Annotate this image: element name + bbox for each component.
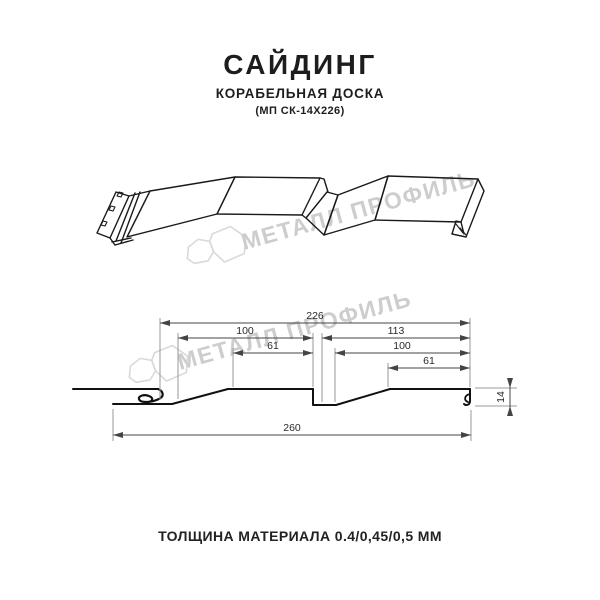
material-thickness-note: ТОЛЩИНА МАТЕРИАЛА 0.4/0,45/0,5 ММ <box>0 528 600 544</box>
watermark-brand-text: МЕТАЛЛ ПРОФИЛЬ <box>238 165 478 255</box>
watermark-lower: МЕТАЛЛ ПРОФИЛЬ <box>125 285 414 387</box>
dim-label-100-left: 100 <box>236 325 254 337</box>
technical-drawing: МЕТАЛЛ ПРОФИЛЬ МЕТАЛЛ ПРОФИЛЬ <box>0 0 600 600</box>
dim-label-61-left: 61 <box>267 340 279 352</box>
dim-label-100-right: 100 <box>393 340 411 352</box>
watermark-brand-text: МЕТАЛЛ ПРОФИЛЬ <box>174 285 414 375</box>
siding-spec-sheet: САЙДИНГ КОРАБЕЛЬНАЯ ДОСКА (МП СК-14Х226)… <box>0 0 600 600</box>
cross-section-drawing <box>73 389 470 405</box>
dim-label-260: 260 <box>283 422 301 434</box>
dim-label-113: 113 <box>388 325 405 337</box>
dim-label-61-right: 61 <box>423 355 435 367</box>
dim-label-14: 14 <box>495 391 507 403</box>
dim-label-226: 226 <box>306 310 324 322</box>
